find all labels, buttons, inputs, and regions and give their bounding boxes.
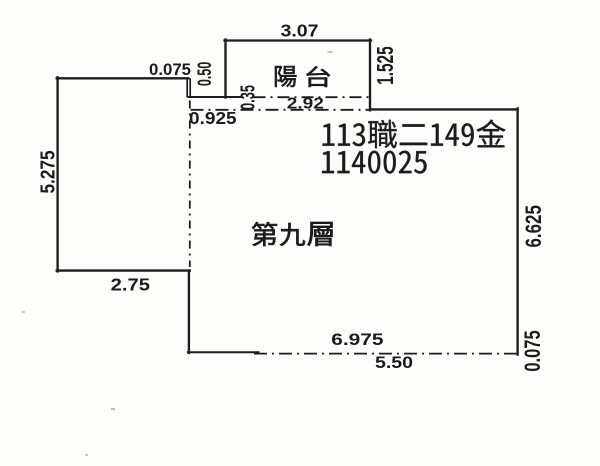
svg-text:2.92: 2.92 [287, 94, 324, 112]
svg-text:0.075: 0.075 [149, 60, 191, 79]
svg-text:0.35: 0.35 [237, 85, 260, 110]
svg-text:0.50: 0.50 [194, 62, 215, 86]
svg-text:2.75: 2.75 [111, 275, 151, 295]
svg-text:6.625: 6.625 [522, 205, 547, 247]
svg-text:6.975: 6.975 [331, 331, 384, 350]
svg-text:3.07: 3.07 [280, 20, 318, 40]
svg-text:5.275: 5.275 [37, 150, 60, 193]
svg-text:1.525: 1.525 [373, 46, 399, 85]
svg-text:5.50: 5.50 [375, 352, 413, 371]
svg-text:0.075: 0.075 [521, 330, 546, 371]
svg-text:0.925: 0.925 [189, 107, 237, 127]
